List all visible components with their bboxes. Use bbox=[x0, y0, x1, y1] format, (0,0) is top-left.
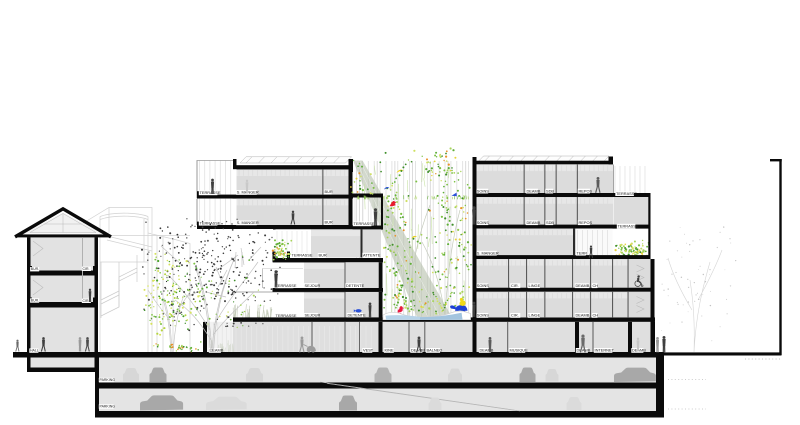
svg-text:DEAMB: DEAMB bbox=[480, 348, 494, 353]
svg-text:DEAMB: DEAMB bbox=[577, 348, 591, 353]
svg-text:BUR: BUR bbox=[319, 253, 327, 258]
svg-text:DEAMB: DEAMB bbox=[527, 220, 541, 225]
svg-text:S. MANGER: S. MANGER bbox=[477, 250, 499, 255]
svg-text:DEAMB.: DEAMB. bbox=[576, 283, 591, 288]
svg-text:TERRASSE: TERRASSE bbox=[616, 191, 637, 196]
svg-text:BUR: BUR bbox=[325, 189, 333, 194]
svg-text:CH: CH bbox=[593, 313, 599, 318]
svg-text:MUSIQUE: MUSIQUE bbox=[510, 348, 529, 353]
svg-text:SOINS: SOINS bbox=[477, 188, 490, 193]
svg-text:TERRASSE: TERRASSE bbox=[200, 190, 221, 195]
svg-text:DEAMB.: DEAMB. bbox=[576, 313, 591, 318]
svg-text:S. MANGER: S. MANGER bbox=[237, 220, 259, 225]
svg-text:SEJOUR: SEJOUR bbox=[305, 313, 321, 318]
svg-text:TERRASSE: TERRASSE bbox=[292, 253, 313, 258]
svg-text:SEJOUR: SEJOUR bbox=[305, 283, 321, 288]
svg-text:REPOS: REPOS bbox=[579, 188, 593, 193]
svg-text:BUR: BUR bbox=[325, 220, 333, 225]
svg-text:CH: CH bbox=[593, 283, 599, 288]
svg-text:INTERNET: INTERNET bbox=[595, 348, 615, 353]
svg-text:TERR: TERR bbox=[577, 250, 588, 255]
svg-text:DEAMB: DEAMB bbox=[527, 188, 541, 193]
svg-text:CIR.: CIR. bbox=[511, 313, 519, 318]
svg-text:SDB: SDB bbox=[546, 220, 554, 225]
svg-text:CIR.: CIR. bbox=[511, 283, 519, 288]
svg-text:DEAMB: DEAMB bbox=[632, 348, 646, 353]
svg-text:CIR.: CIR. bbox=[83, 267, 90, 271]
svg-text:BUR.: BUR. bbox=[31, 267, 39, 271]
svg-text:KINE: KINE bbox=[385, 348, 394, 353]
svg-text:SOINS: SOINS bbox=[477, 283, 490, 288]
svg-text:TERRASSE: TERRASSE bbox=[276, 313, 297, 318]
svg-text:REPOS: REPOS bbox=[579, 220, 593, 225]
svg-text:TERRASSE: TERRASSE bbox=[618, 223, 639, 228]
svg-text:DETENTE: DETENTE bbox=[348, 313, 367, 318]
svg-text:BUR.: BUR. bbox=[31, 299, 39, 303]
svg-text:DETENTE: DETENTE bbox=[346, 283, 365, 288]
svg-text:SOINS: SOINS bbox=[477, 313, 490, 318]
svg-text:TERRASSE: TERRASSE bbox=[354, 221, 375, 226]
svg-text:ATTENTE: ATTENTE bbox=[363, 252, 381, 257]
svg-text:SOINS: SOINS bbox=[477, 220, 490, 225]
svg-text:LINGE: LINGE bbox=[529, 313, 541, 318]
svg-text:TERRASSE: TERRASSE bbox=[276, 283, 297, 288]
svg-text:CIR.: CIR. bbox=[83, 299, 90, 303]
svg-text:VEST: VEST bbox=[363, 348, 374, 353]
svg-text:PARKING: PARKING bbox=[100, 405, 116, 409]
svg-text:LINGE: LINGE bbox=[529, 283, 541, 288]
svg-text:SDB: SDB bbox=[546, 188, 554, 193]
svg-text:HALL: HALL bbox=[30, 349, 39, 353]
svg-text:BALNEO: BALNEO bbox=[427, 348, 443, 353]
svg-text:PARKING: PARKING bbox=[100, 378, 116, 382]
